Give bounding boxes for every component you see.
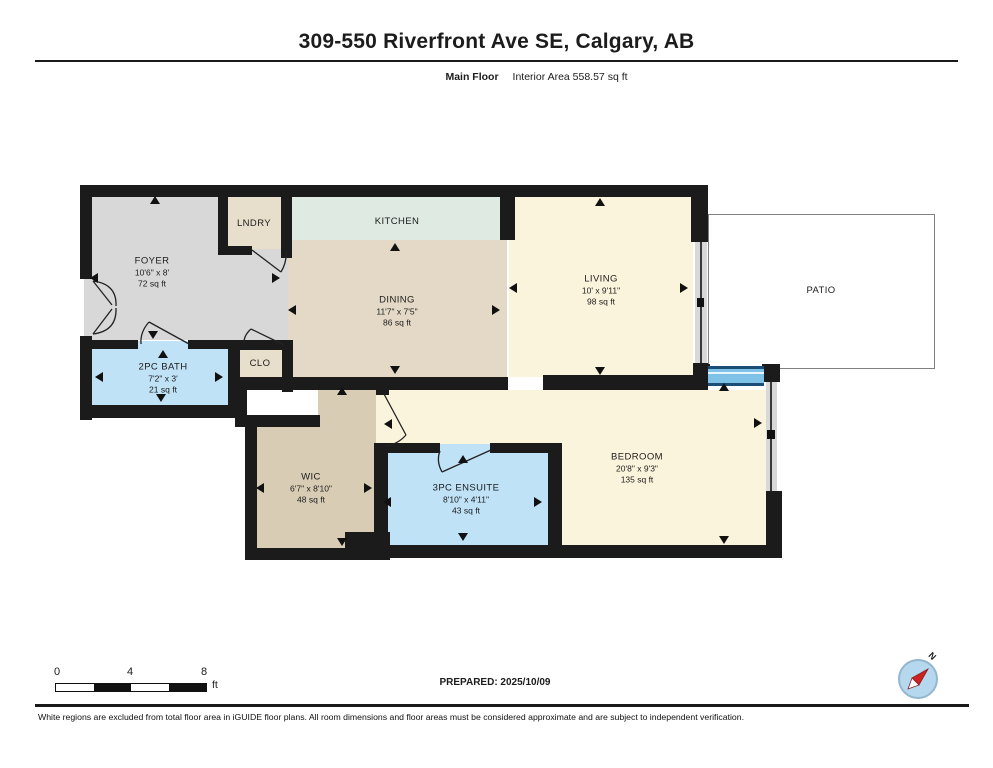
room-label-foyer: FOYER 10'6" x 8' 72 sq ft — [87, 255, 217, 288]
dimension-arrow — [337, 387, 347, 395]
room-label-closet: CLO — [195, 358, 325, 370]
scale-segment — [169, 684, 207, 691]
dimension-arrow — [719, 536, 729, 544]
dimension-arrow — [150, 196, 160, 204]
dimension-arrow — [458, 455, 468, 463]
dimension-arrow — [337, 538, 347, 546]
wall-dining-bottom — [235, 377, 508, 390]
title-divider — [35, 60, 958, 62]
floor-plan-page: { "header": { "title": "309-550 Riverfro… — [0, 0, 993, 768]
window-mullion — [708, 372, 764, 374]
dimension-arrow — [158, 350, 168, 358]
wall-living-right-upper — [691, 197, 708, 242]
bedroom-window — [708, 366, 764, 386]
dimension-arrow — [595, 367, 605, 375]
compass-needle-icon — [900, 661, 936, 697]
wall-top — [80, 185, 708, 197]
room-label-living: LIVING 10' x 9'11" 98 sq ft — [536, 273, 666, 306]
room-label-laundry: LNDRY — [189, 218, 319, 230]
wall-living-bottom — [543, 375, 708, 390]
wall-ensuite-right — [548, 443, 562, 558]
living-glass-latch — [697, 298, 704, 307]
floor-subtitle: Main FloorInterior Area 558.57 sq ft — [80, 71, 993, 83]
scale-bar — [55, 683, 207, 692]
dimension-arrow — [680, 283, 688, 293]
wall-laundry-bottom-stub — [218, 246, 252, 255]
disclaimer-text: White regions are excluded from total fl… — [38, 712, 744, 722]
dimension-arrow — [595, 198, 605, 206]
room-floor-wic-upper — [318, 388, 376, 427]
dimension-arrow — [148, 331, 158, 339]
scale-tick-0: 0 — [50, 666, 64, 678]
wall-bath-top-right — [188, 340, 230, 349]
dimension-arrow — [534, 497, 542, 507]
dimension-arrow — [458, 533, 468, 541]
dimension-arrow — [288, 305, 296, 315]
bedroom-glass-latch — [767, 430, 775, 439]
wall-window-post-right — [762, 364, 780, 382]
dimension-arrow — [272, 273, 280, 283]
dimension-arrow — [754, 418, 762, 428]
scale-segment — [131, 684, 169, 691]
dimension-arrow — [383, 497, 391, 507]
wall-bedroom-right-lower — [766, 491, 782, 558]
wall-bedroom-door-stub — [376, 377, 389, 395]
dimension-arrow — [156, 394, 166, 402]
compass-icon — [898, 659, 938, 699]
footer-divider — [35, 704, 969, 707]
scale-unit-label: ft — [212, 679, 218, 691]
scale-tick-4: 4 — [123, 666, 137, 678]
wall-kitchen-living-stub — [500, 197, 515, 240]
dimension-arrow — [390, 243, 400, 251]
scale-tick-8: 8 — [197, 666, 211, 678]
room-label-dining: DINING 11'7" x 7'5" 86 sq ft — [332, 294, 462, 327]
room-floor-bedroom-upper — [388, 390, 768, 444]
interior-area-label: Interior Area 558.57 sq ft — [513, 71, 628, 83]
wall-bath-top-left — [80, 340, 138, 349]
dimension-arrow — [719, 383, 729, 391]
dimension-arrow — [509, 283, 517, 293]
room-label-kitchen: KITCHEN — [332, 216, 462, 228]
dimension-arrow — [492, 305, 500, 315]
dimension-arrow — [390, 366, 400, 374]
room-label-patio: PATIO — [756, 285, 886, 297]
room-label-wic: WIC 6'7" x 8'10" 48 sq ft — [246, 471, 376, 504]
scale-segment — [56, 684, 94, 691]
wall-bath-bottom — [80, 405, 242, 418]
page-title: 309-550 Riverfront Ave SE, Calgary, AB — [0, 30, 993, 54]
room-label-bedroom: BEDROOM 20'8" x 9'3" 135 sq ft — [572, 451, 702, 484]
dimension-arrow — [384, 419, 392, 429]
prepared-date: PREPARED: 2025/10/09 — [380, 677, 610, 688]
floor-name-label: Main Floor — [445, 71, 498, 83]
wall-ensuite-top-left — [383, 443, 440, 453]
scale-segment — [94, 684, 132, 691]
room-label-ensuite: 3PC ENSUITE 8'10" x 4'11" 43 sq ft — [401, 482, 531, 515]
wall-bottom — [372, 545, 782, 558]
